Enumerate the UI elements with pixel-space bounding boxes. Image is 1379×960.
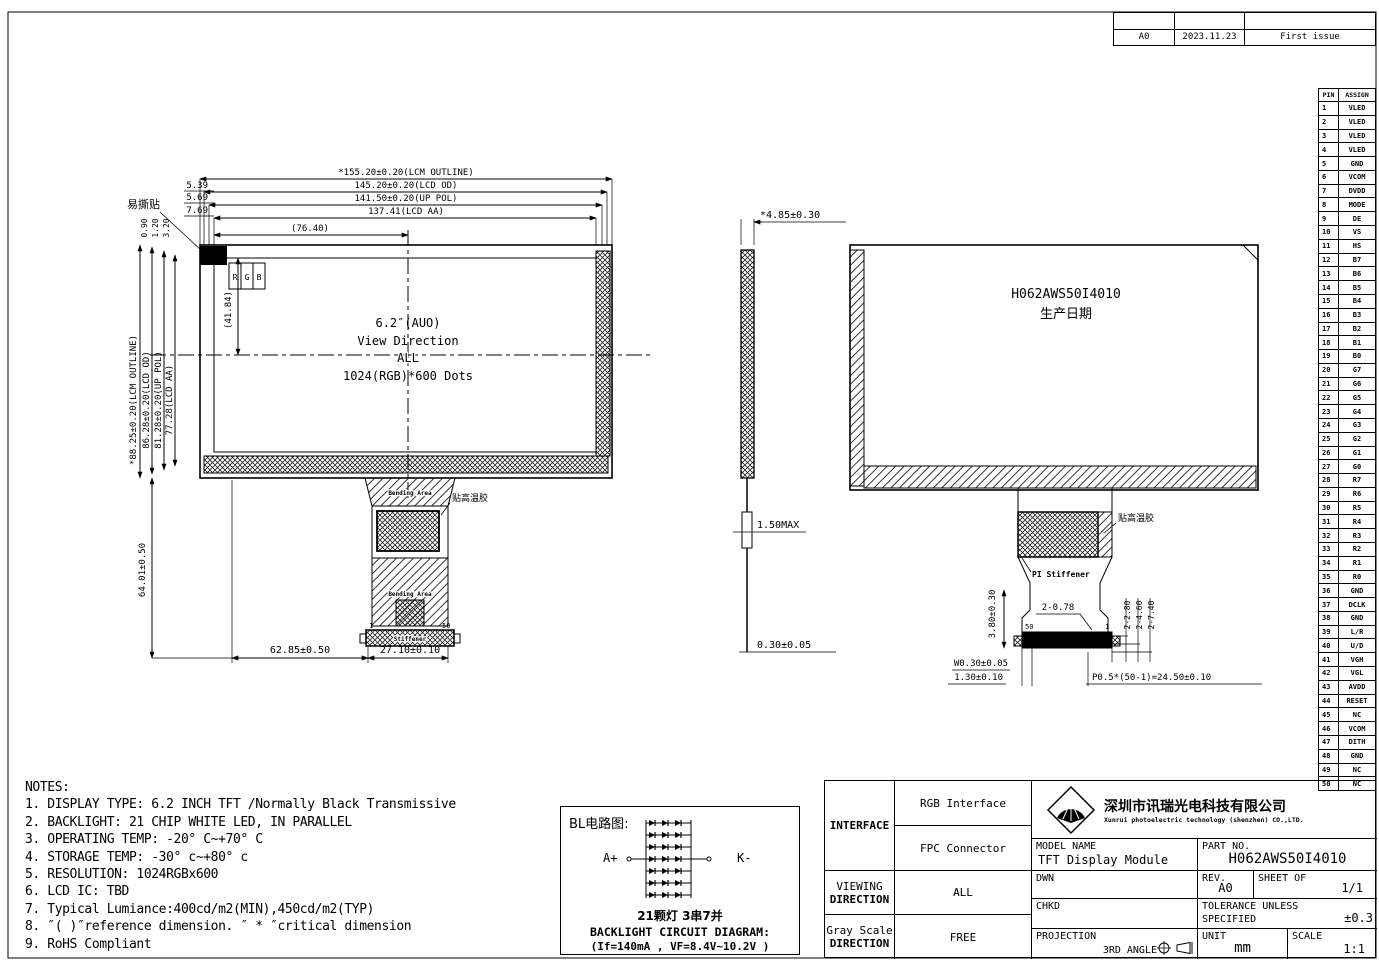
pin-number: 33	[1319, 543, 1339, 556]
note-line: 8. ″( )″reference dimension. ″ * ″critic…	[25, 918, 565, 935]
pin-signal: B7	[1339, 254, 1375, 267]
dim-lcd-od-v: 86.28±0.20(LCD OD)	[142, 351, 152, 449]
pin-signal: B2	[1339, 323, 1375, 336]
side-view-labels: *4.85±0.30 1.50MAX 0.30±0.05	[757, 210, 820, 651]
pin-signal: VCOM	[1339, 171, 1375, 184]
pin-row: 5 GND	[1319, 157, 1375, 171]
pin-number: 39	[1319, 626, 1339, 639]
pin-row: 46 VCOM	[1319, 722, 1375, 736]
pin-signal: G4	[1339, 405, 1375, 418]
pin-number: 38	[1319, 612, 1339, 625]
viewing-value: ALL	[953, 886, 973, 899]
pin-number: 10	[1319, 226, 1339, 239]
pin-signal: B4	[1339, 295, 1375, 308]
pin-number: 11	[1319, 240, 1339, 253]
pin50-front: 50	[442, 622, 450, 630]
pin-number: 35	[1319, 571, 1339, 584]
pin-signal: B5	[1339, 281, 1375, 294]
part-no-cell: PART NO. H062AWS50I4010	[1197, 839, 1377, 871]
model-name-label: MODEL NAME	[1036, 841, 1096, 852]
pin-number: 24	[1319, 419, 1339, 432]
bl-cathode-label: K-	[737, 851, 751, 865]
pin-number: 28	[1319, 474, 1339, 487]
pin-row: 34 R1	[1319, 557, 1375, 571]
pin-number: 32	[1319, 529, 1339, 542]
pi-stiffener-label: PI Stiffener	[1032, 569, 1090, 579]
interface-label-cell: INTERFACE	[825, 781, 895, 871]
view-direction-label: View Direction	[357, 334, 458, 348]
dim-lcd-od-h: 145.20±0.20(LCD OD)	[355, 181, 458, 191]
pin-row: 11 HS	[1319, 240, 1375, 254]
dim-w030: W0.30±0.05	[954, 659, 1008, 669]
unit-value: mm	[1198, 940, 1287, 956]
company-logo	[1046, 785, 1096, 835]
pin-assignment-table: PIN ASSIGN 1 VLED 2 VLED 3 VLED 4 VLED 5…	[1318, 88, 1376, 791]
sheet-cell: SHEET OF 1/1	[1253, 871, 1377, 899]
interface-val1-cell: RGB Interface	[895, 781, 1031, 826]
pin-row: 44 RESET	[1319, 695, 1375, 709]
pin-signal: R7	[1339, 474, 1375, 487]
pin-number: 41	[1319, 653, 1339, 666]
tape-label-back: 贴高温胶	[1118, 512, 1154, 524]
note-line: 6. LCD IC: TBD	[25, 883, 565, 900]
bl-led-config: 21颗灯 3串7并	[561, 907, 799, 924]
pin-number: 14	[1319, 281, 1339, 294]
revision-desc: First issue	[1244, 30, 1375, 46]
viewing-val-cell: ALL	[895, 871, 1031, 915]
pin-row: 8 MODE	[1319, 198, 1375, 212]
pin-number: 13	[1319, 267, 1339, 280]
dim-2-460: 2-4.60	[1135, 600, 1144, 629]
gray-label: Gray Scale	[826, 924, 892, 937]
pin-row: 33 R2	[1319, 543, 1375, 557]
pin-number: 17	[1319, 323, 1339, 336]
pin-number: 49	[1319, 764, 1339, 777]
rev-cell: REV. A0	[1197, 871, 1253, 899]
resolution-label: 1024(RGB)*600 Dots	[343, 369, 473, 383]
pin-row: 18 B1	[1319, 336, 1375, 350]
dim-2-280: 2-2.80	[1123, 600, 1132, 629]
pin-signal: G6	[1339, 378, 1375, 391]
pin1-front: 1	[369, 622, 373, 630]
pin-signal: R0	[1339, 571, 1375, 584]
projection-label: PROJECTION	[1036, 931, 1096, 942]
pin-row: 41 VGH	[1319, 653, 1375, 667]
bl-caption: BACKLIGHT CIRCUIT DIAGRAM:	[561, 925, 799, 939]
pin-signal: G5	[1339, 391, 1375, 404]
pin-row: 45 NC	[1319, 708, 1375, 722]
pin-signal: U/D	[1339, 639, 1375, 652]
note-line: 1. DISPLAY TYPE: 6.2 INCH TFT /Normally …	[25, 796, 565, 813]
pin-number: 26	[1319, 447, 1339, 460]
pin-number: 34	[1319, 557, 1339, 570]
dim-6285: 62.85±0.50	[270, 645, 330, 656]
pin-row: 32 R3	[1319, 529, 1375, 543]
title-block: INTERFACE RGB Interface FPC Connector VI…	[824, 780, 1376, 958]
pin-row: 14 B5	[1319, 281, 1375, 295]
pin-signal: R4	[1339, 515, 1375, 528]
pin-number: 44	[1319, 695, 1339, 708]
dim-lcm-outline-v: *88.25±0.20(LCM OUTLINE)	[129, 335, 139, 465]
pin-header-pin: PIN	[1319, 89, 1339, 101]
pin-signal: DITH	[1339, 736, 1375, 749]
bending-area-bottom-label: Bending Area	[388, 591, 432, 598]
viewing-label: VIEWING	[836, 880, 882, 893]
pin-signal: VGL	[1339, 667, 1375, 680]
tolerance-cell: TOLERANCE UNLESS SPECIFIED ±0.3	[1197, 899, 1377, 929]
pin-number: 3	[1319, 130, 1339, 143]
pin-row: 17 B2	[1319, 323, 1375, 337]
pin-number: 4	[1319, 143, 1339, 156]
pin-row: 15 B4	[1319, 295, 1375, 309]
pin-row: 7 DVDD	[1319, 185, 1375, 199]
interface-rgb: RGB Interface	[920, 797, 1006, 810]
pin-row: 23 G4	[1319, 405, 1375, 419]
revision-row	[1114, 13, 1375, 29]
pin-signal: HS	[1339, 240, 1375, 253]
interface-label: INTERFACE	[830, 819, 890, 832]
pin-row: 6 VCOM	[1319, 171, 1375, 185]
gray-label2: DIRECTION	[830, 937, 890, 950]
pin-signal: L/R	[1339, 626, 1375, 639]
pin-row: 4 VLED	[1319, 143, 1375, 157]
interface-fpc: FPC Connector	[920, 842, 1006, 855]
pin-row: 39 L/R	[1319, 626, 1375, 640]
back-prod-date: 生产日期	[1040, 307, 1092, 322]
drawing-sheet: *155.20±0.20(LCM OUTLINE) 145.20±0.20(LC…	[0, 0, 1379, 960]
pin-number: 40	[1319, 639, 1339, 652]
pin-signal: MODE	[1339, 198, 1375, 211]
fpc-connector-back	[1022, 632, 1112, 648]
dim-center-h: (76.40)	[291, 224, 329, 234]
pin-number: 12	[1319, 254, 1339, 267]
dim-320: 3.20	[162, 218, 171, 237]
pin-number: 43	[1319, 681, 1339, 694]
dim-lcd-aa-h: 137.41(LCD AA)	[368, 207, 444, 217]
pin-number: 25	[1319, 433, 1339, 446]
bl-electrical-spec: (If=140mA , VF=8.4V~10.2V )	[561, 940, 799, 953]
pin-number: 6	[1319, 171, 1339, 184]
pin-row: 35 R0	[1319, 571, 1375, 585]
rgb-r: R	[233, 273, 238, 282]
pin-row: 29 R6	[1319, 488, 1375, 502]
note-line: 5. RESOLUTION: 1024RGBx600	[25, 866, 565, 883]
dim-120: 1.20	[151, 218, 160, 237]
pin-row: 47 DITH	[1319, 736, 1375, 750]
pin-header-assign: ASSIGN	[1339, 89, 1375, 101]
pin-signal: GND	[1339, 584, 1375, 597]
company-name-en: Xunrui photoelectric technology (shenzhe…	[1104, 816, 1304, 824]
view-direction-all: ALL	[397, 351, 419, 365]
pin-number: 29	[1319, 488, 1339, 501]
dim-up-pol-h: 141.50±0.20(UP POL)	[355, 194, 458, 204]
note-line: 7. Typical Lumiance:400cd/m2(MIN),450cd/…	[25, 901, 565, 918]
viewing-label2: DIRECTION	[830, 893, 890, 906]
dim-thickness: *4.85±0.30	[760, 210, 820, 221]
pin-row: 16 B3	[1319, 309, 1375, 323]
pin-row: 43 AVDD	[1319, 681, 1375, 695]
pin-row: 37 DCLK	[1319, 598, 1375, 612]
pin-signal: R5	[1339, 502, 1375, 515]
pin-row: 22 G5	[1319, 391, 1375, 405]
pin-number: 36	[1319, 584, 1339, 597]
tolerance-value: ±0.3	[1198, 911, 1377, 925]
pin-number: 27	[1319, 460, 1339, 473]
dim-030: 0.30±0.05	[757, 640, 811, 651]
pin-signal: VCOM	[1339, 722, 1375, 735]
pin-signal: R1	[1339, 557, 1375, 570]
pin-signal: G2	[1339, 433, 1375, 446]
pin-signal: G7	[1339, 364, 1375, 377]
pin-number: 30	[1319, 502, 1339, 515]
dim-539: 5.39	[186, 181, 208, 191]
note-line: 2. BACKLIGHT: 21 CHIP WHITE LED, IN PARA…	[25, 814, 565, 831]
pin-signal: AVDD	[1339, 681, 1375, 694]
pin-signal: DCLK	[1339, 598, 1375, 611]
panel-size-label: 6.2″(AUO)	[375, 316, 440, 330]
pin-signal: G1	[1339, 447, 1375, 460]
pin-row: 19 B0	[1319, 350, 1375, 364]
adhesive-tape-back	[1098, 512, 1112, 557]
rev-value: A0	[1198, 881, 1253, 895]
pin-signal: R2	[1339, 543, 1375, 556]
pin-row: 40 U/D	[1319, 639, 1375, 653]
pin-number: 22	[1319, 391, 1339, 404]
bl-title: BL电路图:	[569, 813, 629, 832]
gray-val-cell: FREE	[895, 915, 1031, 959]
pin-signal: NC	[1339, 764, 1375, 777]
dim-center-v: (41.84)	[224, 291, 234, 329]
pin-row: 3 VLED	[1319, 130, 1375, 144]
pin-signal: DE	[1339, 212, 1375, 225]
pin-signal: VLED	[1339, 143, 1375, 156]
pin-row: 38 GND	[1319, 612, 1375, 626]
pin-number: 16	[1319, 309, 1339, 322]
pin-number: 47	[1319, 736, 1339, 749]
pin-number: 9	[1319, 212, 1339, 225]
pin-number: 8	[1319, 198, 1339, 211]
led-symbols	[649, 820, 681, 898]
scale-value: 1:1	[1288, 942, 1377, 956]
model-name-cell: MODEL NAME TFT Display Module	[1031, 839, 1197, 871]
pin-signal: R3	[1339, 529, 1375, 542]
part-no-value: H062AWS50I4010	[1198, 851, 1377, 867]
sheet-value: 1/1	[1254, 881, 1377, 895]
dim-lcm-outline-h: *155.20±0.20(LCM OUTLINE)	[338, 168, 473, 178]
note-line: 4. STORAGE TEMP: -30° c~+80° c	[25, 849, 565, 866]
pin-signal: B0	[1339, 350, 1375, 363]
pin-row: 20 G7	[1319, 364, 1375, 378]
rgb-g: G	[245, 273, 250, 282]
rgb-b: B	[257, 273, 262, 282]
interface-val2-cell: FPC Connector	[895, 826, 1031, 871]
note-line: 3. OPERATING TEMP: -20° C~+70° C	[25, 831, 565, 848]
dwn-cell: DWN	[1031, 871, 1197, 899]
gray-scale-cell: Gray Scale DIRECTION	[825, 915, 895, 959]
pin-row: 26 G1	[1319, 447, 1375, 461]
side-view	[733, 219, 846, 652]
notes-section: NOTES: 1. DISPLAY TYPE: 6.2 INCH TFT /No…	[25, 779, 565, 953]
revision-rev	[1114, 13, 1174, 29]
chkd-label: CHKD	[1036, 901, 1060, 912]
tape-label-front: 贴高温胶	[452, 492, 488, 504]
pin-number: 37	[1319, 598, 1339, 611]
dim-569: 5.69	[186, 193, 208, 203]
pin-signal: DVDD	[1339, 185, 1375, 198]
bl-anode-label: A+	[603, 851, 617, 865]
pin-row: 2 VLED	[1319, 116, 1375, 130]
pin-row: 13 B6	[1319, 267, 1375, 281]
stiffener-label-front: Stiffener	[394, 636, 427, 643]
pin-signal: VS	[1339, 226, 1375, 239]
revision-date	[1174, 13, 1244, 29]
viewing-direction-cell: VIEWING DIRECTION	[825, 871, 895, 915]
pin-row: 1 VLED	[1319, 102, 1375, 116]
pin-row: 48 GND	[1319, 750, 1375, 764]
pin-row: 27 G0	[1319, 460, 1375, 474]
tear-sticker-label: 易撕贴	[127, 197, 160, 211]
pin-row: 31 R4	[1319, 515, 1375, 529]
pin-number: 45	[1319, 708, 1339, 721]
third-angle-icon	[1157, 941, 1193, 955]
bending-area-top-label: Bending Area	[388, 490, 432, 497]
dim-lcd-aa-v: 77.28(LCD AA)	[165, 365, 175, 435]
dim-769: 7.69	[186, 206, 208, 216]
company-name-cn: 深圳市讯瑞光电科技有限公司	[1104, 796, 1304, 816]
pin-signal: VGH	[1339, 653, 1375, 666]
revision-desc	[1244, 13, 1375, 29]
pin-number: 7	[1319, 185, 1339, 198]
pin-signal: GND	[1339, 750, 1375, 763]
dim-380: 3.80±0.30	[988, 590, 998, 639]
pin-row: 28 R7	[1319, 474, 1375, 488]
pin-row: 25 G2	[1319, 433, 1375, 447]
pin-signal: B3	[1339, 309, 1375, 322]
pin-number: 20	[1319, 364, 1339, 377]
dim-2710: 27.10±0.10	[380, 645, 440, 656]
pin-number: 18	[1319, 336, 1339, 349]
pin-number: 2	[1319, 116, 1339, 129]
gray-value: FREE	[950, 931, 977, 944]
dim-6401: 64.01±0.50	[138, 543, 148, 597]
scale-cell: SCALE 1:1	[1287, 929, 1377, 959]
revision-date: 2023.11.23	[1174, 30, 1244, 46]
pin-row: 30 R5	[1319, 502, 1375, 516]
pin-row: 12 B7	[1319, 254, 1375, 268]
pin-number: 5	[1319, 157, 1339, 170]
model-name-value: TFT Display Module	[1032, 853, 1197, 867]
pin-number: 1	[1319, 102, 1339, 115]
dwn-label: DWN	[1036, 873, 1054, 884]
pin-number: 21	[1319, 378, 1339, 391]
chkd-cell: CHKD	[1031, 899, 1197, 929]
adhesive-block	[377, 511, 439, 551]
pin-number: 19	[1319, 350, 1339, 363]
projection-cell: PROJECTION 3RD ANGLE	[1031, 929, 1197, 959]
pin-signal: GND	[1339, 157, 1375, 170]
company-cell: 深圳市讯瑞光电科技有限公司 Xunrui photoelectric techn…	[1031, 781, 1377, 839]
pin-row: 10 VS	[1319, 226, 1375, 240]
pi-stiffener-block	[1018, 512, 1098, 557]
pin-number: 42	[1319, 667, 1339, 680]
note-line: 9. RoHS Compliant	[25, 936, 565, 953]
pin-signal: GND	[1339, 612, 1375, 625]
pin-signal: B1	[1339, 336, 1375, 349]
pin-signal: G0	[1339, 460, 1375, 473]
pin-signal: B6	[1339, 267, 1375, 280]
pin-row: 49 NC	[1319, 764, 1375, 778]
pin-row: 21 G6	[1319, 378, 1375, 392]
pin-row: 42 VGL	[1319, 667, 1375, 681]
revision-row: A0 2023.11.23 First issue	[1114, 29, 1375, 46]
dim-pitch: P0.5*(50-1)=24.50±0.10	[1092, 673, 1211, 683]
dim-150max: 1.50MAX	[757, 520, 799, 531]
pin-row: 36 GND	[1319, 584, 1375, 598]
pin-row: 9 DE	[1319, 212, 1375, 226]
revision-table: A0 2023.11.23 First issue	[1113, 12, 1376, 46]
pin-signal: G3	[1339, 419, 1375, 432]
dim-2-078: 2-0.78	[1042, 603, 1075, 613]
dim-130: 1.30±0.10	[954, 673, 1003, 683]
pin-table-header: PIN ASSIGN	[1319, 89, 1375, 102]
dim-090: 0.90	[140, 218, 149, 237]
pin-signal: VLED	[1339, 130, 1375, 143]
pin-row: 24 G3	[1319, 419, 1375, 433]
unit-cell: UNIT mm	[1197, 929, 1287, 959]
revision-rev: A0	[1114, 30, 1174, 46]
pin-signal: RESET	[1339, 695, 1375, 708]
pin-signal: R6	[1339, 488, 1375, 501]
pin-signal: VLED	[1339, 116, 1375, 129]
pin-signal: NC	[1339, 708, 1375, 721]
pin-number: 46	[1319, 722, 1339, 735]
dim-up-pol-v: 81.28±0.20(UP POL)	[154, 351, 164, 449]
pin-number: 48	[1319, 750, 1339, 763]
pin-number: 23	[1319, 405, 1339, 418]
tear-sticker-mark	[200, 246, 227, 265]
dim-2-740: 2-7.40	[1147, 600, 1156, 629]
notes-title: NOTES:	[25, 779, 565, 796]
pin-number: 31	[1319, 515, 1339, 528]
pin-signal: VLED	[1339, 102, 1375, 115]
pin1-back: 1	[1105, 623, 1109, 631]
back-part-no: H062AWS50I4010	[1011, 287, 1121, 302]
backlight-circuit-box: BL电路图: A+ K- 21颗灯 3串7并 BACKLIGHT CIRCUIT…	[560, 806, 800, 955]
pin-number: 15	[1319, 295, 1339, 308]
pin50-back: 50	[1025, 623, 1033, 631]
scale-label: SCALE	[1292, 931, 1322, 942]
